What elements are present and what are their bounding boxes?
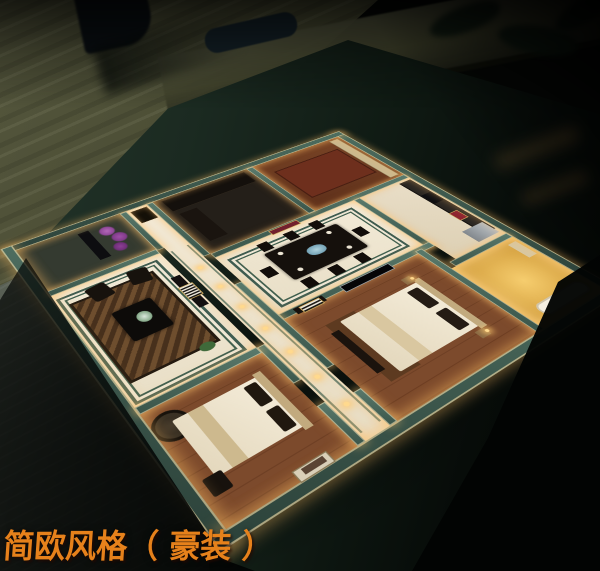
- shadow-top-right-corner: [300, 0, 600, 270]
- caption-overlay: 简欧风格（ 豪装 ）: [2, 519, 275, 567]
- photo-scene: 简欧风格（ 豪装 ）: [0, 0, 600, 571]
